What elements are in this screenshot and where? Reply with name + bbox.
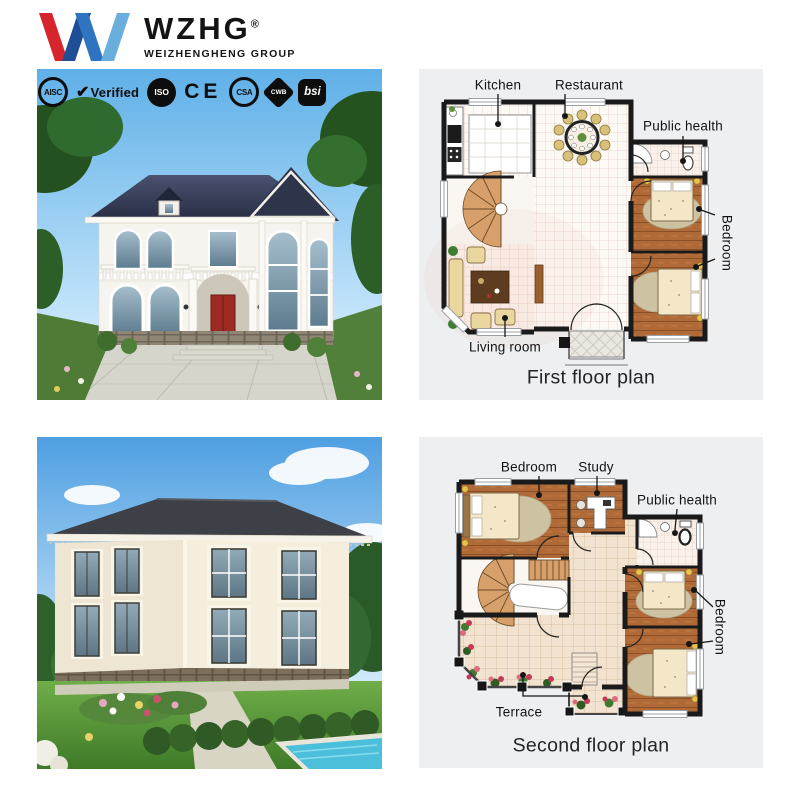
second-floor-plan-drawing [419, 437, 763, 768]
bed-mid [636, 569, 692, 618]
label-kitchen: Kitchen [475, 78, 521, 93]
certification-badges: AISC ✔Verified ISO CE CSA CWB bsi [38, 77, 326, 107]
bsi-badge-icon: bsi [298, 79, 326, 106]
villa-garden-illustration [37, 437, 382, 769]
console-table [535, 265, 543, 303]
brand-name: WZHG® [144, 13, 296, 44]
label-restaurant: Restaurant [555, 78, 623, 93]
poster-canvas: WZHG® WEIZHENGHENG GROUP [0, 0, 800, 800]
registered-mark: ® [251, 19, 259, 31]
villa-front-illustration [37, 69, 382, 400]
stone-base-front [185, 668, 349, 681]
corridor-floor [625, 517, 637, 567]
check-icon: ✔ [76, 82, 90, 102]
second-floor-plan-panel: Bedroom Study Public health Bedroom Terr… [419, 437, 763, 768]
label-living-room: Living room [469, 340, 541, 355]
house [47, 499, 372, 687]
wall-lamp [184, 305, 189, 310]
wzhg-logo-icon [37, 13, 132, 61]
second-floor-caption: Second floor plan [513, 735, 670, 758]
label-public-health: Public health [637, 493, 717, 508]
porch-post [559, 337, 570, 348]
aisc-badge-icon: AISC [38, 77, 68, 107]
label-public-health: Public health [643, 119, 723, 134]
label-study: Study [578, 460, 614, 475]
label-bedroom: Bedroom [720, 215, 735, 271]
right-windows [259, 221, 329, 337]
brand-header: WZHG® WEIZHENGHENG GROUP [37, 13, 296, 61]
cwb-badge-icon: CWB [263, 76, 296, 109]
photo-villa-front: AISC ✔Verified ISO CE CSA CWB bsi [37, 69, 382, 400]
brand-group-name: WEIZHENGHENG GROUP [144, 48, 296, 60]
house [85, 167, 339, 360]
label-bedroom-right: Bedroom [713, 599, 728, 655]
label-terrace: Terrace [496, 705, 542, 720]
label-bedroom-top: Bedroom [501, 460, 557, 475]
ce-mark-icon: CE [184, 80, 221, 104]
iso-badge-icon: ISO [147, 78, 176, 107]
csa-badge-icon: CSA [229, 77, 259, 107]
verified-badge-icon: ✔Verified [76, 82, 139, 102]
photo-villa-garden [37, 437, 382, 769]
entry-steps [173, 345, 273, 360]
bed-1 [643, 178, 701, 229]
first-floor-caption: First floor plan [527, 367, 655, 390]
brand-text: WZHG® WEIZHENGHENG GROUP [144, 13, 296, 60]
kitchen-appliances [446, 106, 531, 175]
porch-floor [569, 331, 624, 357]
first-floor-plan-panel: Kitchen Restaurant Public health Bedroom… [419, 69, 763, 400]
